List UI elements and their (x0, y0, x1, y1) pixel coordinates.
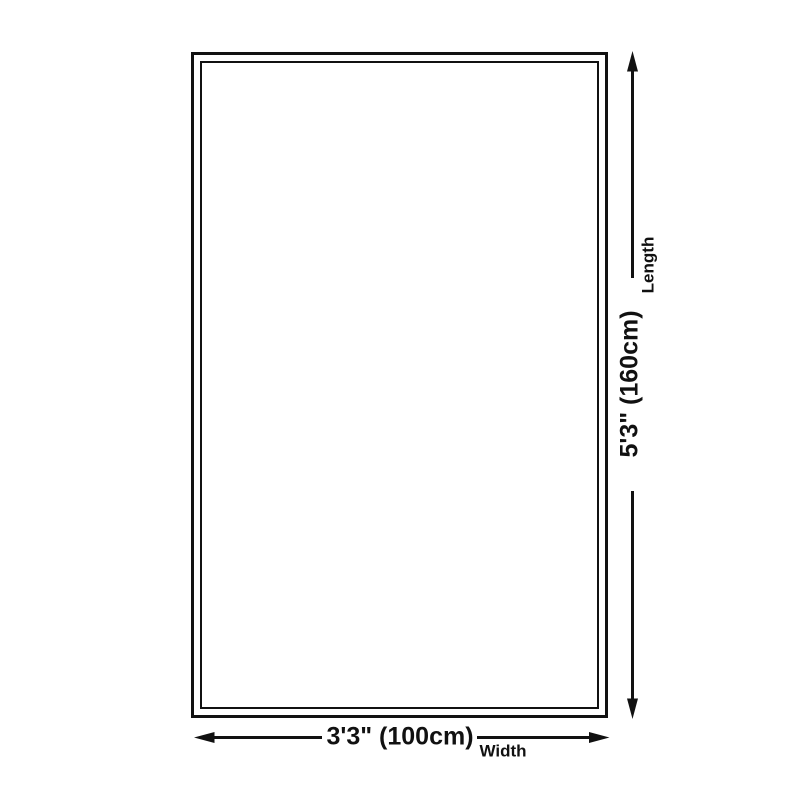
width-axis-label: Width (479, 743, 526, 760)
dimension-diagram: 3'3" (100cm) Width 5'3" (160cm) Length (0, 0, 800, 800)
length-value: 5'3" (160cm) (618, 310, 643, 457)
length-axis-label: Length (640, 237, 657, 294)
width-arrow-right-head-icon (589, 732, 610, 743)
dimension-arrows (0, 0, 800, 800)
length-arrow-down-head-icon (627, 699, 638, 720)
width-value: 3'3" (100cm) (326, 725, 473, 750)
